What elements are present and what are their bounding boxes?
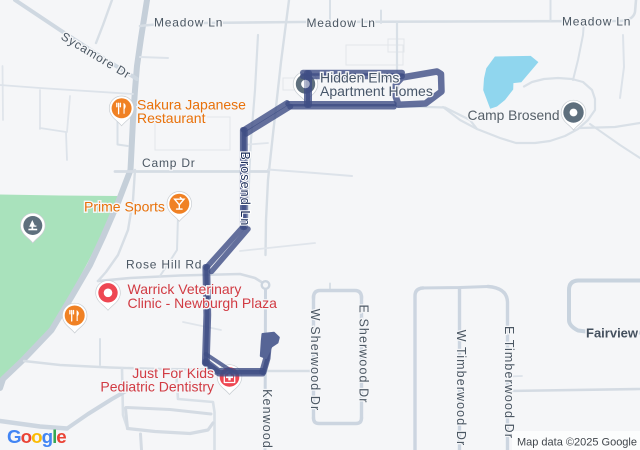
svg-text:Meadow Ln: Meadow Ln [562,15,631,29]
svg-text:E Sherwood Dr: E Sherwood Dr [357,304,371,403]
svg-text:Camp Brosend: Camp Brosend [468,108,560,123]
svg-text:Apartment Homes: Apartment Homes [320,83,433,99]
svg-text:Camp Dr: Camp Dr [142,156,196,170]
svg-text:W Sherwood Dr: W Sherwood Dr [308,309,322,412]
svg-text:W Timberwood Dr: W Timberwood Dr [454,330,468,447]
svg-text:Prime Sports: Prime Sports [84,199,165,215]
svg-text:Map data ©2025 Google: Map data ©2025 Google [517,437,637,449]
svg-text:Clinic - Newburgh Plaza: Clinic - Newburgh Plaza [128,295,278,311]
svg-text:Pediatric Dentistry: Pediatric Dentistry [100,379,214,395]
svg-text:Brosend Ln: Brosend Ln [238,152,252,227]
svg-text:Fairview R: Fairview R [586,326,640,341]
svg-text:Google: Google [7,426,66,447]
svg-text:Restaurant: Restaurant [137,110,206,126]
svg-text:E Timberwood Dr: E Timberwood Dr [502,326,516,439]
svg-text:Meadow Ln: Meadow Ln [154,16,223,30]
svg-text:Meadow Ln: Meadow Ln [307,16,376,30]
svg-text:Kenwood: Kenwood [260,389,274,449]
svg-text:Rose Hill Rd: Rose Hill Rd [126,258,202,272]
